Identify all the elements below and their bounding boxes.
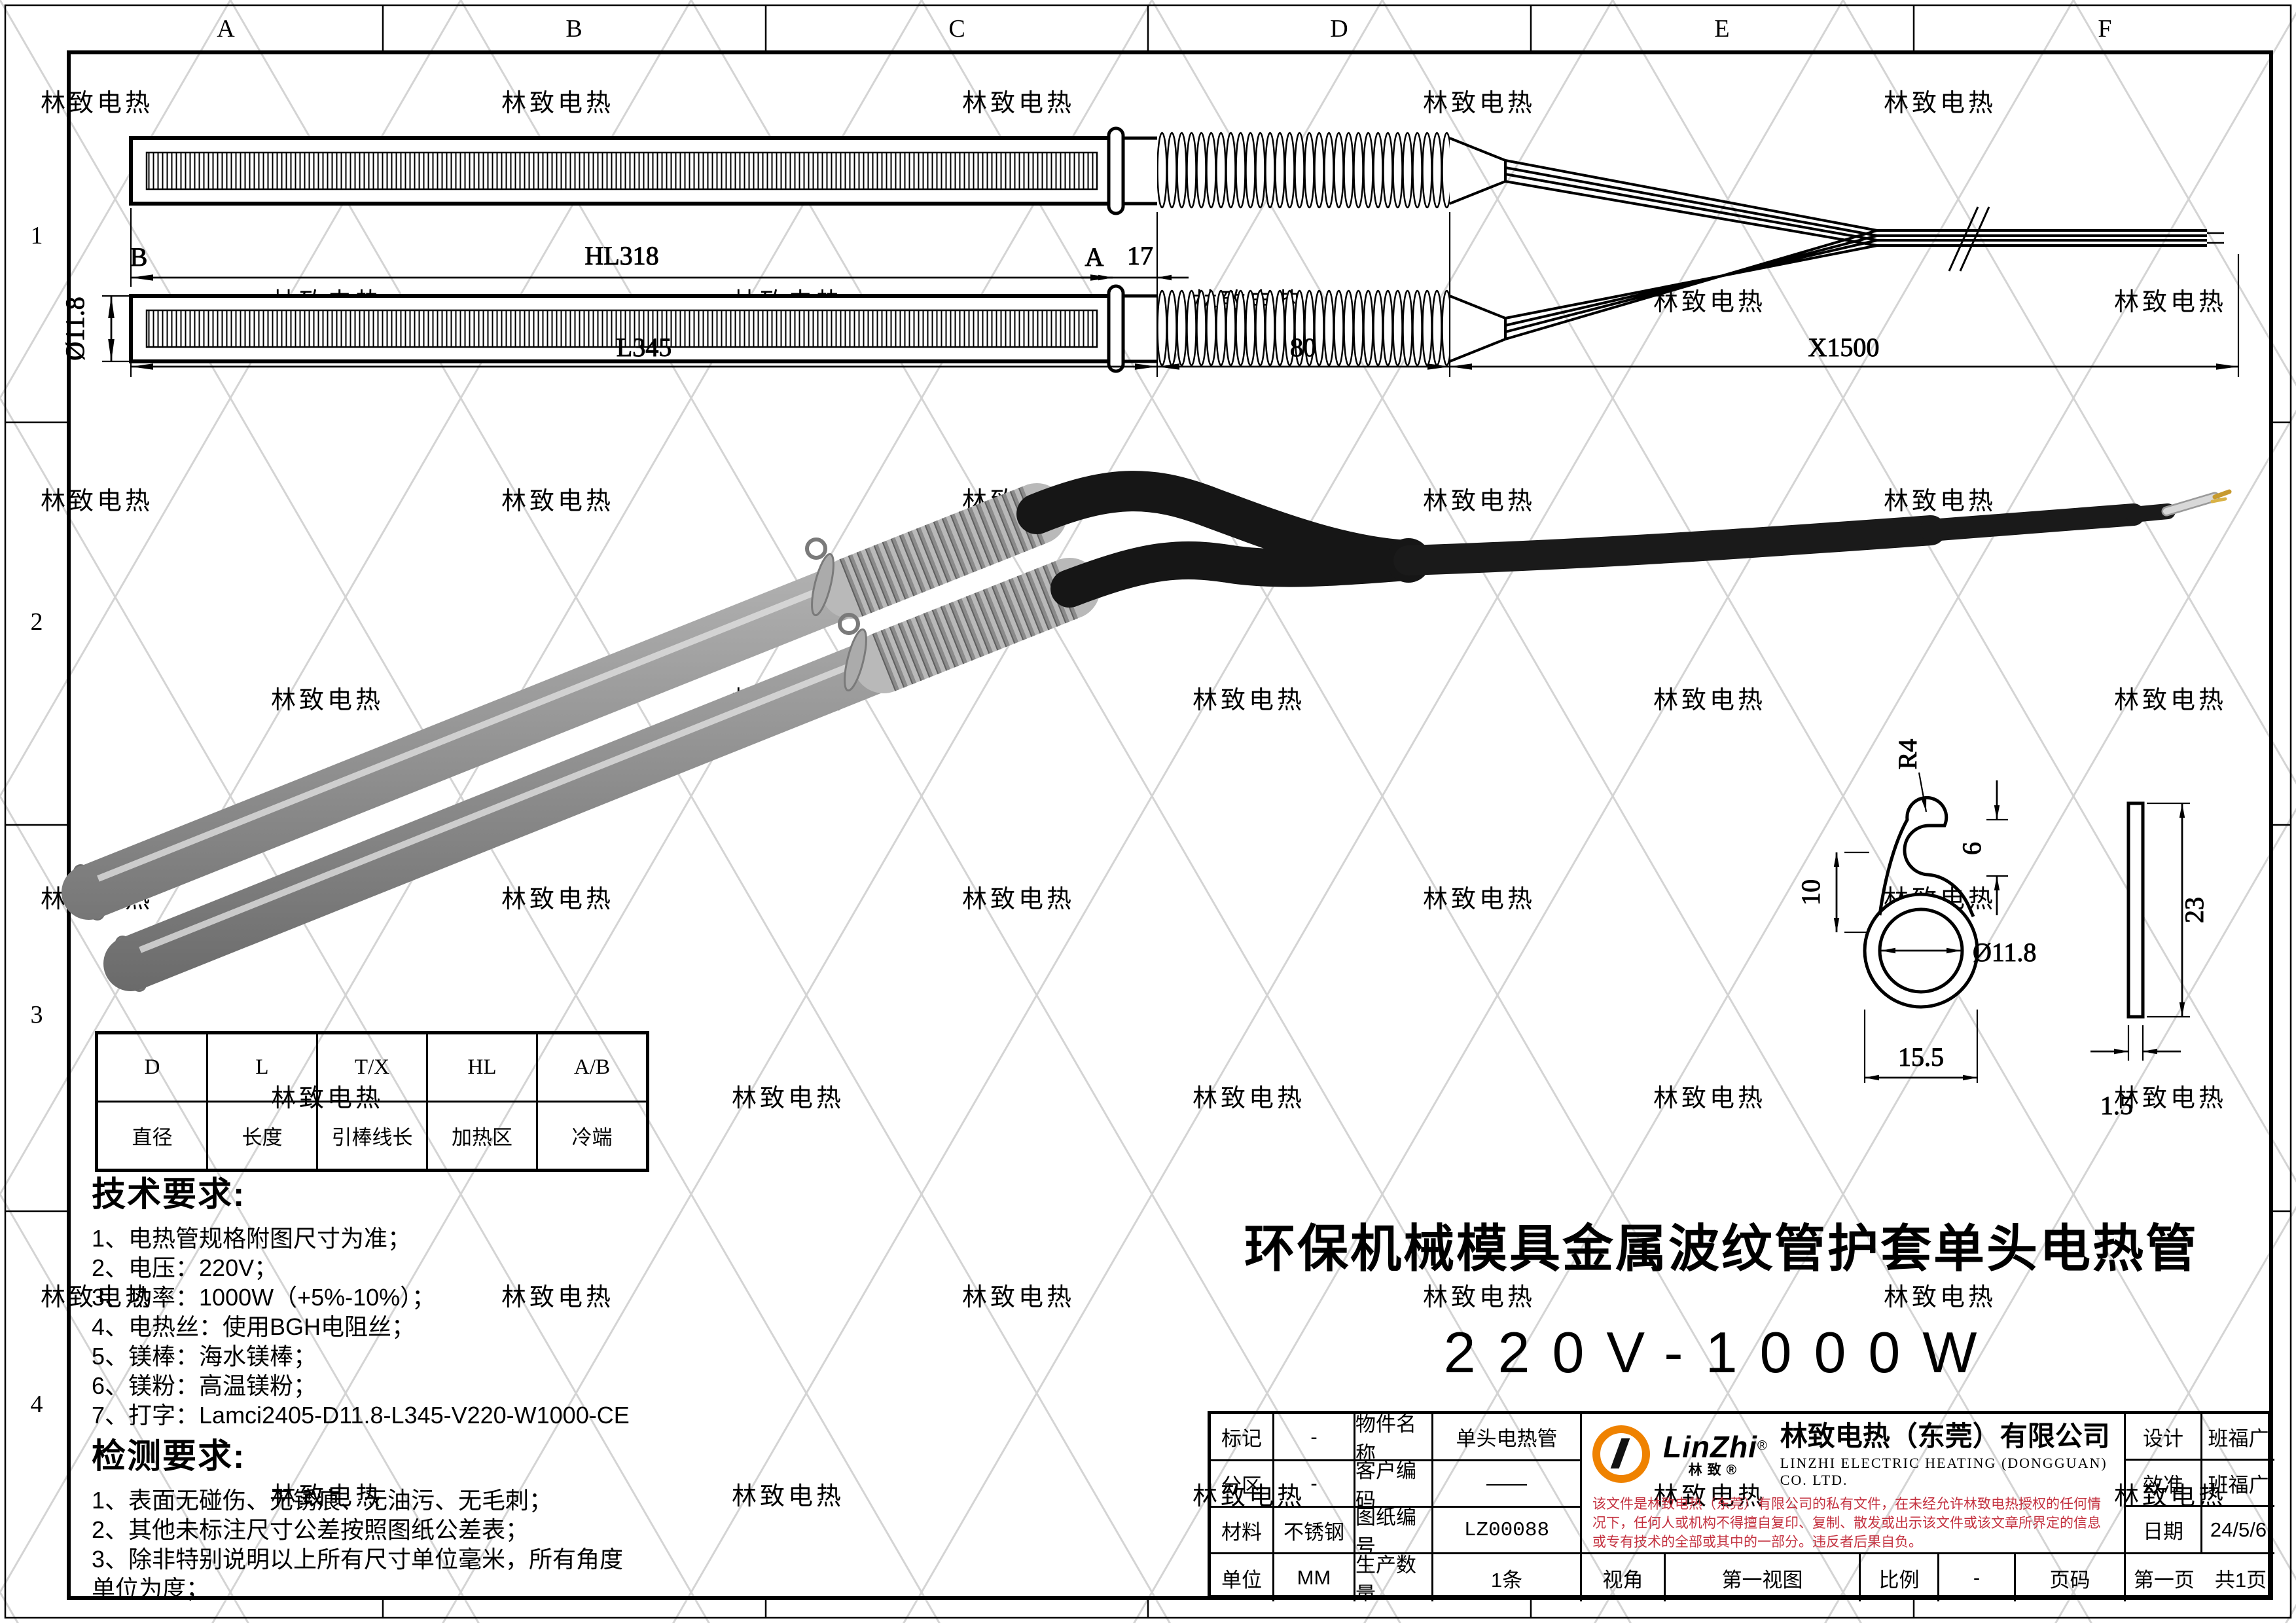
detail-dim-23: 23 (2179, 897, 2209, 923)
title-block: 标记 - 物件名称 单头电热管 分区 - 客户编码 —— 材料 不锈钢 图纸编号… (1208, 1411, 2271, 1598)
zone-value: - (1274, 1461, 1355, 1508)
param-value-leadwire: 引棒线长 (317, 1102, 427, 1171)
designer-label: 设计 (2126, 1414, 2202, 1461)
frame-column-label-f: F (2098, 14, 2111, 43)
frame-row-label-2: 2 (31, 608, 43, 636)
inspection-item: 2、其他未标注尺寸公差按照图纸公差表； (92, 1515, 635, 1544)
tech-item: 6、镁粉：高温镁粉； (92, 1371, 844, 1400)
param-value-cold-end: 冷端 (537, 1102, 648, 1171)
dim-a: A (1085, 242, 1104, 272)
production-qty-label: 生产数量 (1355, 1554, 1433, 1601)
unit-value: MM (1274, 1554, 1355, 1601)
tech-item: 5、镁棒：海水镁棒； (92, 1341, 844, 1371)
inspection-requirements-heading: 检测要求: (92, 1429, 635, 1478)
designer-value: 班福广 (2202, 1414, 2274, 1461)
material-label: 材料 (1211, 1508, 1274, 1554)
part-name-label: 物件名称 (1355, 1414, 1433, 1461)
mark-label: 标记 (1211, 1414, 1274, 1461)
param-header-d: D (97, 1033, 207, 1102)
detail-dim-diameter: Ø11.8 (1973, 938, 2036, 967)
mark-value: - (1274, 1414, 1355, 1461)
logo-chinese-text: 林致® (1663, 1463, 1767, 1477)
tech-requirements: 技术要求: 1、电热管规格附图尺寸为准； 2、电压：220V； 3、功率：100… (92, 1167, 844, 1430)
frame-column-label-d: D (1330, 14, 1348, 43)
param-header-l: L (207, 1033, 317, 1102)
param-header-hl: HL (427, 1033, 537, 1102)
dim-hl318: HL318 (584, 241, 658, 270)
param-header-ab: A/B (537, 1033, 648, 1102)
detail-dim-155: 15.5 (1898, 1042, 1944, 1072)
top-view-2d (131, 128, 2224, 371)
unit-label: 单位 (1211, 1554, 1274, 1601)
product-title-area: 环保机械模具金属波纹管护套单头电热管 220V-1000W (1198, 1208, 2245, 1386)
tech-item: 1、电热管规格附图尺寸为准； (92, 1224, 844, 1253)
detail-views: R4 10 6 Ø11.8 15.5 23 1.5 (1796, 739, 2209, 1120)
dim-80: 80 (1290, 333, 1316, 362)
lower-tube-flange (1109, 286, 1123, 371)
frame-row-label-3: 3 (31, 1000, 43, 1029)
company-name: 林致电热（东莞）有限公司 (1780, 1421, 2113, 1452)
frame-row-label-4: 4 (31, 1390, 43, 1419)
zone-label: 分区 (1211, 1461, 1274, 1508)
company-cell: LinZhi® 林致® 林致电热（东莞）有限公司 LINZHI ELECTRIC… (1582, 1414, 2126, 1554)
frame-column-label-a: A (217, 14, 234, 43)
tech-requirements-heading: 技术要求: (92, 1167, 844, 1216)
lower-black-sleeve-3d (1069, 560, 1407, 589)
frame-column-label-b: B (565, 14, 582, 43)
production-qty-value: 1条 (1433, 1554, 1582, 1601)
lead-cable-3d (1408, 530, 1931, 560)
dim-x1500: X1500 (1808, 333, 1880, 362)
confidentiality-notice: 该文件是林致电热（东莞）有限公司的私有文件，在未经允许林致电热授权的任何情况下，… (1592, 1495, 2109, 1552)
date-value: 24/5/6 (2202, 1507, 2274, 1554)
parameter-table-header-row: D L T/X HL A/B (97, 1033, 648, 1102)
checker-value: 班福广 (2202, 1461, 2274, 1507)
dim-diameter: Ø11.8 (60, 297, 90, 360)
detail-dim-10: 10 (1796, 879, 1825, 905)
lead-bundle (1877, 230, 2207, 246)
dim-b: B (130, 242, 148, 272)
param-header-tx: T/X (317, 1033, 427, 1102)
dim-l345: L345 (617, 333, 672, 362)
logo-wordmark-text: LinZhi (1663, 1430, 1757, 1464)
tech-item: 2、电压：220V； (92, 1253, 844, 1283)
scale-label: 比例 (1861, 1554, 1939, 1601)
param-value-heating-zone: 加热区 (427, 1102, 537, 1171)
param-value-length: 长度 (207, 1102, 317, 1171)
customer-code-value: —— (1433, 1461, 1582, 1508)
upper-tube-flange (1109, 128, 1123, 213)
drawing-number-value: LZ00088 (1433, 1508, 1582, 1554)
checker-label: 效准 (2126, 1461, 2202, 1507)
tech-item: 7、打字：Lamci2405-D11.8-L345-V220-W1000-CE (92, 1400, 844, 1430)
date-label: 日期 (2126, 1507, 2202, 1554)
parameter-table: D L T/X HL A/B 直径 长度 引棒线长 加热区 冷端 (95, 1031, 649, 1172)
tech-item: 3、功率：1000W（+5%-10%）； (92, 1283, 844, 1312)
page-number-label: 页码 (2016, 1554, 2126, 1601)
detail-dim-6: 6 (1957, 842, 1986, 855)
upper-bellows (1157, 132, 1450, 209)
product-title: 环保机械模具金属波纹管护套单头电热管 (1198, 1208, 2245, 1281)
dim-17: 17 (1127, 241, 1153, 270)
company-name-english: LINZHI ELECTRIC HEATING (DONGGUAN) CO. L… (1780, 1455, 2113, 1488)
drawing-sheet: { "watermark": {"text": "林致电热"}, "colors… (0, 0, 2296, 1623)
product-spec: 220V-1000W (1198, 1319, 2245, 1386)
inspection-item: 3、除非特别说明以上所有尺寸单位毫米，所有角度单位为度； (92, 1544, 635, 1603)
inspection-item: 1、表面无碰伤、无锈痕、无油污、无毛刺； (92, 1486, 635, 1515)
page-number-value: 第一页 共1页 (2126, 1554, 2274, 1601)
linzhi-logo-icon (1592, 1425, 1650, 1483)
wire-tip-3d (2215, 492, 2229, 497)
customer-code-label: 客户编码 (1355, 1461, 1433, 1508)
detail-dim-r4: R4 (1893, 739, 1922, 770)
logo-registered-mark: ® (1757, 1439, 1767, 1453)
inspection-requirements: 检测要求: 1、表面无碰伤、无锈痕、无油污、无毛刺； 2、其他未标注尺寸公差按照… (92, 1429, 635, 1603)
scale-value: - (1939, 1554, 2016, 1601)
drawing-number-label: 图纸编号 (1355, 1508, 1433, 1554)
parameter-table-value-row: 直径 长度 引棒线长 加热区 冷端 (97, 1102, 648, 1171)
frame-column-label-e: E (1714, 14, 1729, 43)
view-angle-value: 第一视图 (1666, 1554, 1861, 1601)
material-value: 不锈钢 (1274, 1508, 1355, 1554)
clip-plate-side-view (2128, 803, 2143, 1017)
upper-tube-heating-zone (147, 153, 1097, 189)
part-name-value: 单头电热管 (1433, 1414, 1582, 1461)
param-value-diameter: 直径 (97, 1102, 207, 1171)
view-angle-label: 视角 (1582, 1554, 1666, 1601)
detail-dim-15: 1.5 (2100, 1091, 2133, 1120)
frame-row-label-1: 1 (31, 221, 43, 250)
frame-column-label-c: C (948, 14, 965, 43)
tech-item: 4、电热丝：使用BGH电阻丝； (92, 1312, 844, 1341)
